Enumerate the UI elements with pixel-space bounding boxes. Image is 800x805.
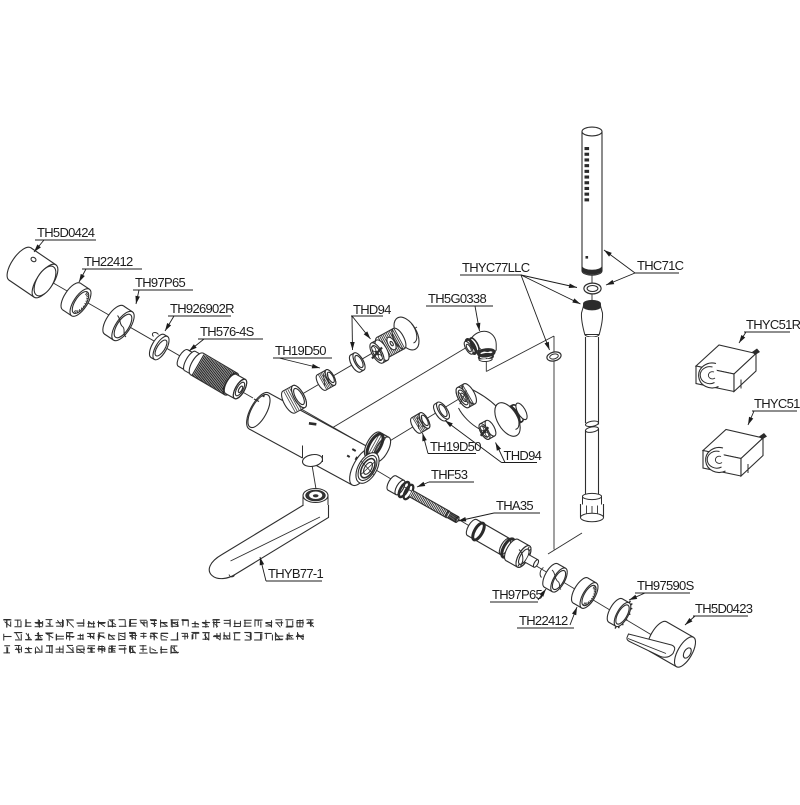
- svg-text:THYB77-1: THYB77-1: [268, 566, 324, 581]
- svg-text:THYC51R: THYC51R: [754, 396, 800, 411]
- svg-text:TH19D50: TH19D50: [275, 343, 326, 358]
- svg-text:THD94: THD94: [504, 448, 542, 463]
- svg-text:TH5D0423: TH5D0423: [695, 601, 753, 616]
- svg-text:TH97P65: TH97P65: [492, 587, 542, 602]
- svg-text:TH22412: TH22412: [84, 254, 133, 269]
- svg-text:THF53: THF53: [431, 467, 468, 482]
- svg-text:TH576-4S: TH576-4S: [200, 324, 255, 339]
- svg-text:TH97590S: TH97590S: [637, 578, 695, 593]
- svg-text:TH5D0424: TH5D0424: [37, 225, 95, 240]
- svg-text:TH5G0338: TH5G0338: [428, 291, 486, 306]
- svg-text:TH926902R: TH926902R: [170, 301, 234, 316]
- svg-text:TH22412: TH22412: [519, 613, 568, 628]
- svg-text:THC71C: THC71C: [637, 258, 684, 273]
- svg-text:THD94: THD94: [353, 302, 391, 317]
- svg-text:THA35: THA35: [496, 498, 533, 513]
- svg-text:THYC51R: THYC51R: [746, 317, 800, 332]
- svg-text:THYC77LLC: THYC77LLC: [462, 260, 530, 275]
- svg-text:TH97P65: TH97P65: [135, 275, 185, 290]
